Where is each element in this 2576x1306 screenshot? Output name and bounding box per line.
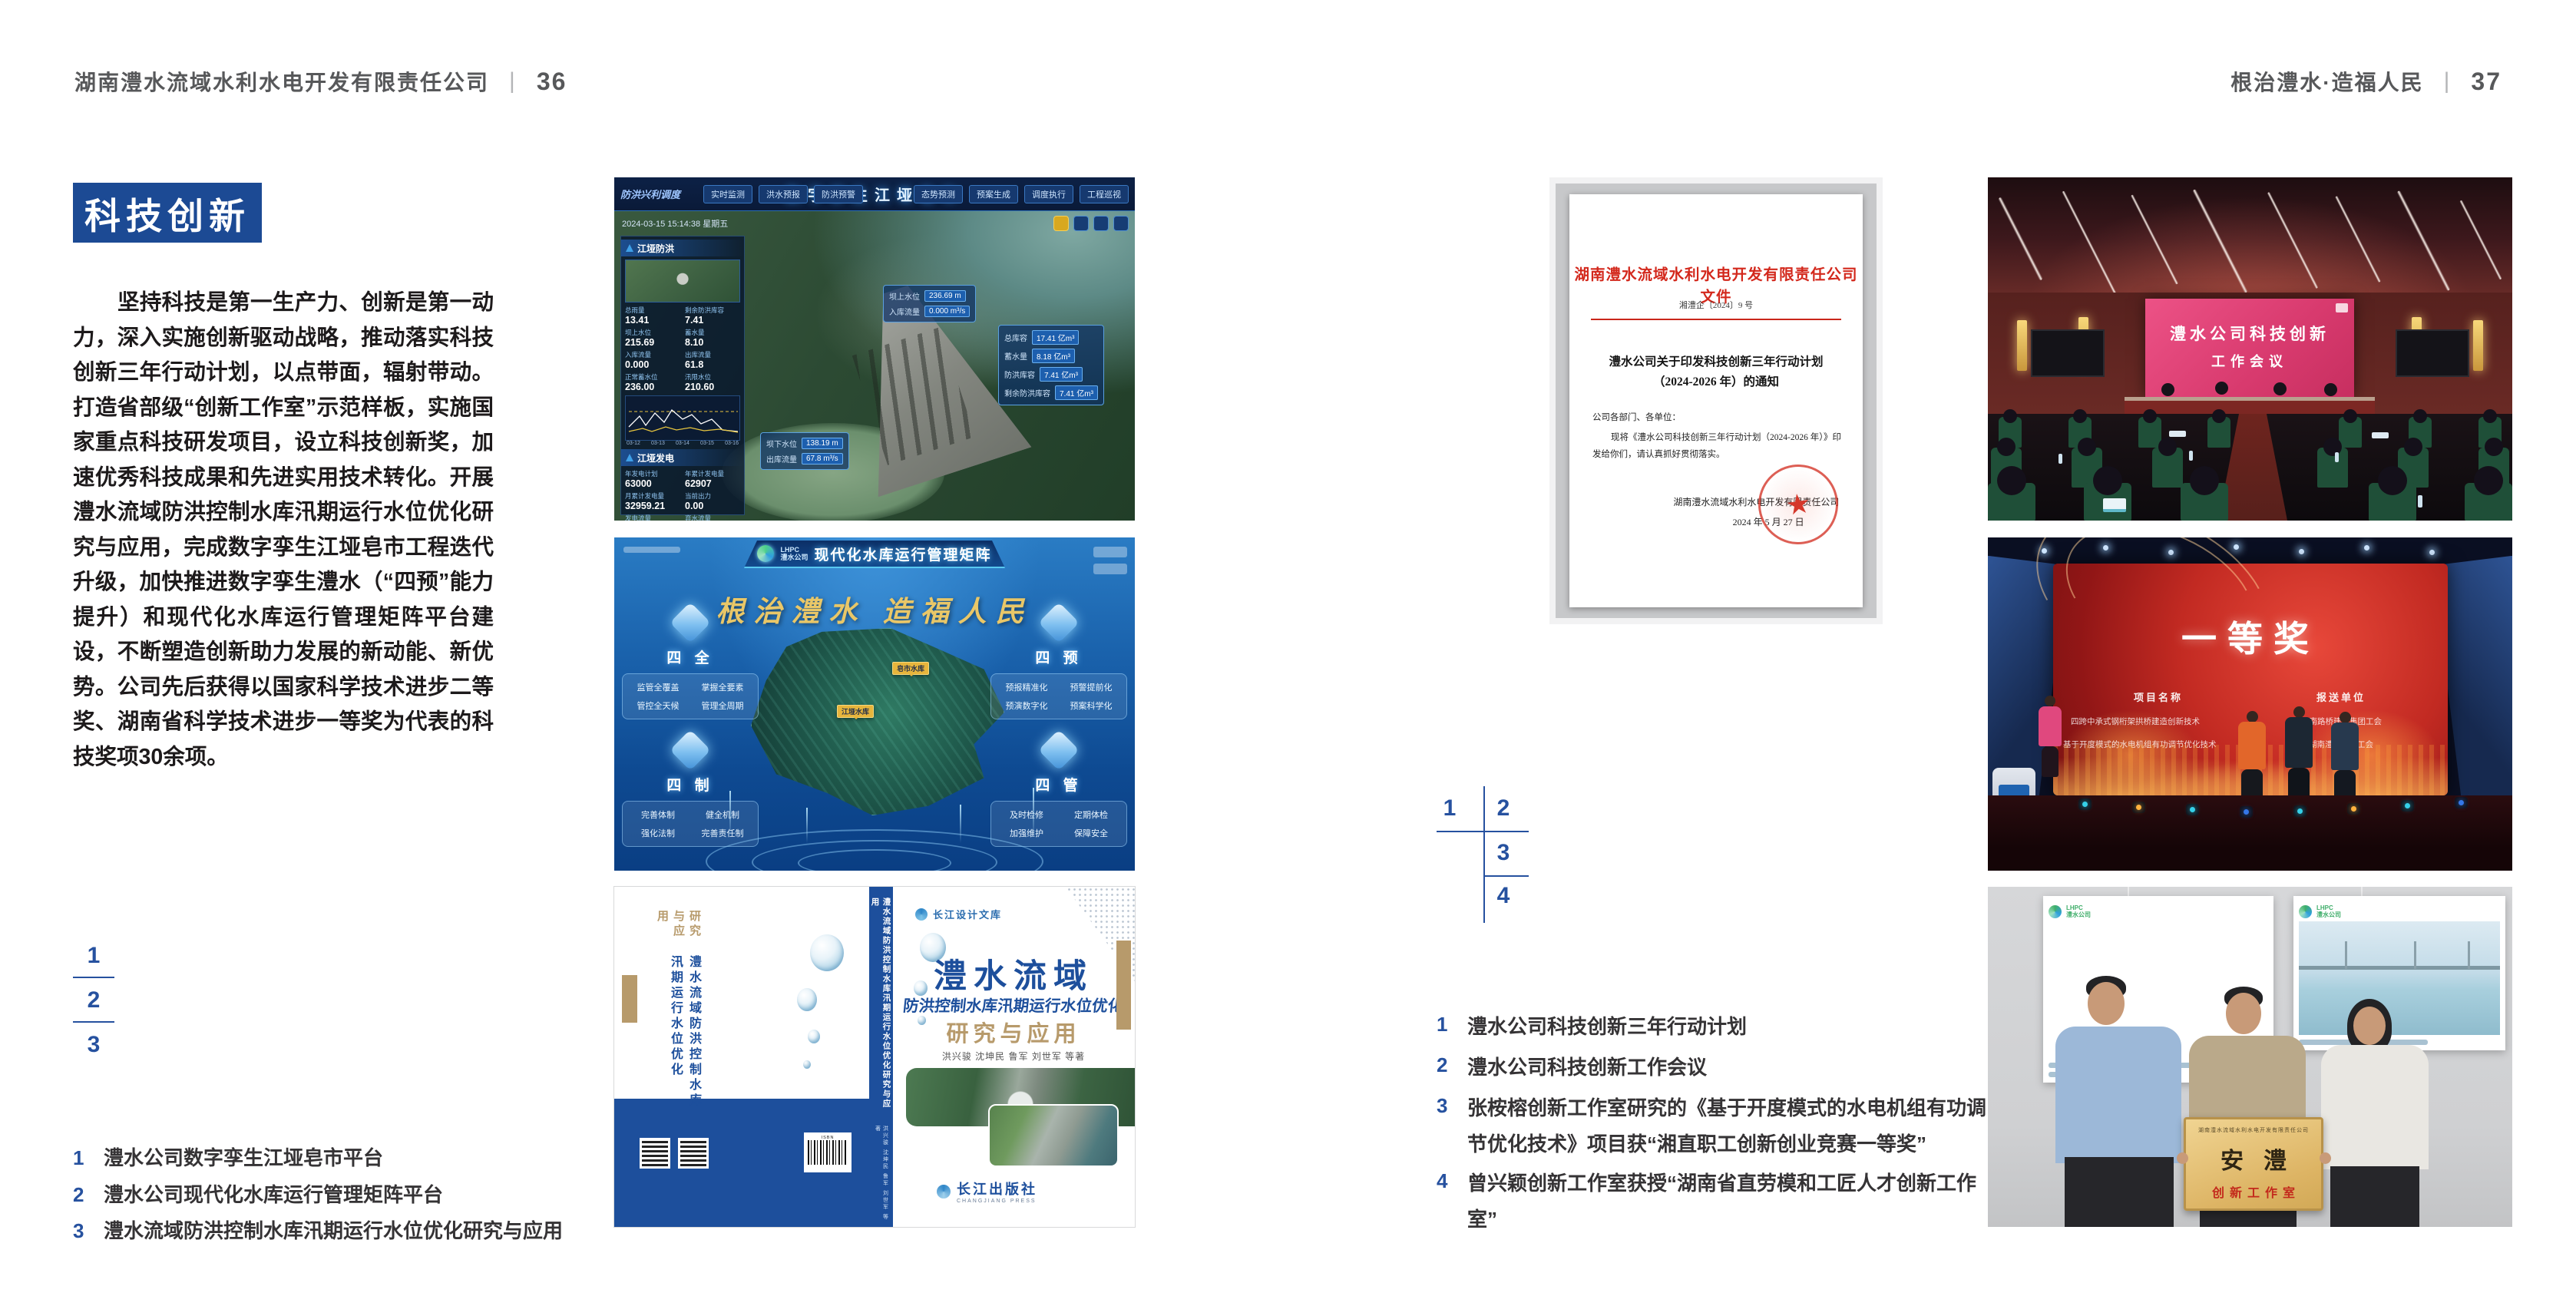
stat-cell: 正常蓄水位236.00 <box>625 372 680 392</box>
tab: 调度执行 <box>1024 185 1073 203</box>
spotlight <box>2364 545 2369 551</box>
stage-light-fixture <box>2401 800 2414 812</box>
meeting-screen: 澧水公司科技创新 工作会议 <box>2145 299 2354 397</box>
holding-hand <box>2177 1152 2188 1164</box>
layers-icon <box>1073 216 1089 231</box>
lhpc-logo-icon <box>2299 905 2312 918</box>
tab: 洪水预报 <box>759 185 808 203</box>
document-page: 湖南澧水流域水利水电开发有限责任公司文件 湘澧企〔2024〕9 号 澧水公司关于… <box>1569 194 1863 607</box>
caption-number: 4 <box>1437 1165 1455 1196</box>
sail-icon <box>626 244 633 252</box>
stat-cell: 年发电计划63000 <box>625 469 680 489</box>
papers <box>2372 432 2389 438</box>
module-title: 四 预 <box>990 646 1127 667</box>
side-display <box>2396 329 2469 377</box>
figure-book-cover: 研究与应用 澧水流域防洪控制水库汛期运行水位优化 澧水流域防洪控制水库汛期运行水… <box>614 887 1135 1227</box>
module-items: 完善体制健全机制 强化法制完善责任制 <box>622 801 759 847</box>
official-seal: ★ <box>1753 459 1843 549</box>
module-items: 及时检修定期体检 加强维护保障安全 <box>990 801 1127 847</box>
poster-logo-row: LHPC澧水公司 <box>2049 901 2268 921</box>
panel-title: 江垭防洪 <box>637 242 674 255</box>
document-body-line2: 发给你们，请认真抓好贯彻落实。 <box>1592 448 1841 460</box>
panelist-head <box>2215 382 2228 395</box>
module-items: 预报精准化预警提前化 预演数字化预案科学化 <box>990 673 1127 719</box>
series-badge: 长江设计文库 <box>915 907 1002 921</box>
platform-title: 现代化水库运行管理矩阵 <box>815 544 992 564</box>
dashboard-timestamp: 2024-03-15 15:14:38 星期五 <box>622 217 728 230</box>
chair <box>1988 483 2035 521</box>
panel-title: 江垭发电 <box>637 451 674 465</box>
person-pants <box>2330 1166 2419 1227</box>
caption-row: 4 曾兴颖创新工作室获授“湖南省直劳模和工匠人才创新工作室” <box>1437 1165 2005 1238</box>
header-divider: | <box>2444 68 2452 94</box>
caption-number: 2 <box>73 1179 91 1210</box>
page-header-left: 湖南澧水流域水利水电开发有限责任公司 | 36 <box>74 66 567 97</box>
poster-caption-bars <box>2299 1040 2500 1045</box>
sail-icon <box>626 454 633 461</box>
caption-number: 1 <box>73 1142 91 1173</box>
figure-index-2: 2 <box>1488 795 1519 822</box>
spine-authors: 洪兴骏 沈坤民 鲁军 刘世军 等著 <box>874 1126 889 1227</box>
spotlight <box>2299 549 2304 554</box>
figure-index-1: 1 <box>73 943 114 969</box>
tab: 防洪预警 <box>814 185 863 203</box>
dashboard-tabs-right: 态势预测 预案生成 调度执行 工程巡视 <box>914 185 1129 203</box>
person-pants <box>2065 1157 2174 1227</box>
figure-award-ceremony: 一等奖 项目名称 报送单位 四跨中承式钢桁架拱桥建造创新技术 基于开度模式的水电… <box>1988 537 2512 871</box>
lhpc-logo-icon <box>757 545 774 562</box>
tissue-box <box>2103 498 2126 512</box>
stage-light-fixture <box>2455 797 2468 808</box>
book-title: 澧水流域 <box>902 950 1125 997</box>
publisher-logo-icon <box>937 1185 951 1199</box>
document-salutation: 公司各部门、各单位： <box>1592 411 1681 423</box>
publisher-name: 长江出版社 <box>957 1179 1037 1199</box>
panelist-head <box>2273 382 2287 395</box>
stage-light-fixture <box>2240 806 2253 818</box>
changjiang-logo-icon <box>915 908 928 921</box>
wall-lamp <box>2473 320 2483 371</box>
host-skirt <box>2042 746 2058 777</box>
stage-light-fixture <box>2132 802 2145 813</box>
book-subtitle: 防洪控制水库汛期运行水位优化 <box>894 993 1132 1016</box>
light-pillar <box>806 808 808 843</box>
panelist-head <box>2324 383 2337 396</box>
document-number: 湘澧企〔2024〕9 号 <box>1569 299 1863 311</box>
caption-number: 3 <box>73 1215 91 1246</box>
mini-chart <box>625 395 740 441</box>
qr-code <box>642 1140 668 1166</box>
document-red-rule <box>1591 319 1841 320</box>
dashboard-corner-label: 防洪兴利调度 <box>620 187 680 201</box>
figure-studio-group-photo: LHPC澧水公司 LHPC澧水公司 <box>1988 887 2512 1227</box>
book-spine: 澧水流域防洪控制水库汛期运行水位优化研究与应用 洪兴骏 沈坤民 鲁军 刘世军 等… <box>869 887 893 1227</box>
wall-poster-right: LHPC澧水公司 <box>2293 896 2505 1050</box>
module-icon <box>670 729 711 771</box>
stat-cell: 弃水流量0.00 <box>685 514 740 521</box>
column-header-project: 项目名称 <box>2134 689 2183 704</box>
qr-code <box>680 1140 706 1166</box>
caption-number: 3 <box>1437 1090 1455 1121</box>
module-sizhi: 四 制 完善体制健全机制 强化法制完善责任制 <box>622 736 759 847</box>
module-siquan: 四 全 监管全覆盖掌握全要素 管控全天候管理全周期 <box>622 608 759 719</box>
chair <box>2138 417 2161 448</box>
figure-index-3: 3 <box>1488 840 1519 866</box>
figure-index-2: 2 <box>73 987 114 1013</box>
stage-light-fixture <box>2293 805 2306 817</box>
series-badge-text: 长江设计文库 <box>933 907 1002 921</box>
presenter-suit <box>2285 717 2313 768</box>
book-series-line: 研究与应用 <box>902 1016 1125 1048</box>
bridge-pylon <box>2345 941 2347 969</box>
module-icon <box>670 602 711 643</box>
barcode: ISBN <box>804 1132 852 1172</box>
caption-text: 澧水流域防洪控制水库汛期运行水位优化研究与应用 <box>104 1215 563 1246</box>
figure-matrix-platform: LHPC澧水公司 现代化水库运行管理矩阵 根治澧水 造福人民 江垭水库 皂市水库… <box>614 537 1135 871</box>
figure-index-1: 1 <box>1434 795 1465 822</box>
column-header-unit: 报送单位 <box>2316 689 2366 704</box>
audience-row <box>1999 417 2502 448</box>
person-head <box>2088 982 2125 1025</box>
module-icon <box>1038 729 1080 771</box>
locate-icon <box>1093 216 1109 231</box>
chair <box>2465 483 2512 521</box>
caption-number: 2 <box>1437 1050 1455 1080</box>
awardee-head <box>2340 712 2351 723</box>
chair <box>2369 483 2416 521</box>
caption-text: 澧水公司现代化水库运行管理矩阵平台 <box>104 1179 443 1210</box>
stat-cell: 当前出力0.00 <box>685 491 740 511</box>
module-siguan: 四 管 及时检修定期体检 加强维护保障安全 <box>990 736 1127 847</box>
document-title-line2: （2024-2026 年）的通知 <box>1569 372 1863 389</box>
water-droplet <box>810 934 844 971</box>
caption-text: 澧水公司数字孪生江垭皂市平台 <box>104 1142 383 1173</box>
chair <box>2339 417 2362 448</box>
power-stats-grid: 年发电计划63000 年累计发电量62907 月累计发电量32959.21 当前… <box>625 469 740 521</box>
stat-cell: 发电流量0.00 <box>625 514 680 521</box>
person-polo-shirt <box>2055 1027 2181 1163</box>
water-droplet <box>797 988 817 1011</box>
caption-text: 曾兴颖创新工作室获授“湖南省直劳模和工匠人才创新工作室” <box>1467 1165 2005 1238</box>
screen-title-line1: 澧水公司科技创新 <box>2145 322 2354 345</box>
stat-cell: 年累计发电量62907 <box>685 469 740 489</box>
stat-cell: 入库流量0.000 <box>625 350 680 370</box>
module-icon <box>1038 602 1080 643</box>
company-name: 湖南澧水流域水利水电开发有限责任公司 <box>74 66 489 97</box>
index-rule <box>73 977 114 978</box>
bridge-pylon <box>2468 941 2470 969</box>
stat-cell: 坝上水位215.69 <box>625 328 680 348</box>
module-title: 四 制 <box>622 774 759 795</box>
wall-lamp <box>2017 320 2027 371</box>
lhpc-logo-icon <box>2049 905 2062 918</box>
water-droplet <box>808 1030 820 1043</box>
screen-logo-icon <box>2336 303 2348 312</box>
basin-map-texture <box>751 628 1004 815</box>
light-pillar <box>729 791 731 837</box>
stat-cell: 剩余防洪库容7.41 <box>685 306 740 326</box>
poster-logo-row: LHPC澧水公司 <box>2299 901 2500 921</box>
book-authors: 洪兴骏 沈坤民 鲁军 刘世军 等著 <box>902 1050 1125 1063</box>
caption-text: 澧水公司科技创新工作会议 <box>1467 1050 2005 1086</box>
callout-downstream: 坝下水位138.19 m 出库流量67.8 m³/s <box>760 432 849 470</box>
caption-row: 1 澧水公司科技创新三年行动计划 <box>1437 1009 2005 1045</box>
page-number-36: 36 <box>537 68 567 96</box>
module-title: 四 全 <box>622 646 759 667</box>
module-title: 四 管 <box>990 774 1127 795</box>
stat-cell: 总雨量13.41 <box>625 306 680 326</box>
module-items: 监管全覆盖掌握全要素 管控全天候管理全周期 <box>622 673 759 719</box>
awardee-orange <box>2238 722 2266 769</box>
document-title-line1: 澧水公司关于印发科技创新三年行动计划 <box>1569 352 1863 369</box>
hologram-ring <box>798 849 951 871</box>
back-title-gold: 研究与应用 <box>654 910 703 951</box>
map-label-jiangya: 江垭水库 <box>837 705 874 718</box>
stage-light-fixture <box>2186 804 2199 815</box>
barcode-bars <box>808 1140 848 1165</box>
panelist-head <box>2161 383 2174 396</box>
stat-cell: 蓄水量8.10 <box>685 328 740 348</box>
front-accent-bar <box>1116 941 1131 1030</box>
person-head <box>2353 1007 2386 1045</box>
figure-index-4: 4 <box>1488 883 1519 909</box>
settings-icon <box>1113 216 1129 231</box>
caption-row: 1 澧水公司数字孪生江垭皂市平台 <box>73 1142 383 1173</box>
toolbar-chip <box>1093 564 1127 574</box>
panel-header-flood: 江垭防洪 <box>621 240 744 256</box>
person-white-tee <box>2321 1045 2429 1169</box>
water-bottle <box>2189 451 2193 461</box>
poster-logo-text: LHPC澧水公司 <box>2316 904 2341 918</box>
figure-innovation-meeting: 澧水公司科技创新 工作会议 <box>1988 177 2512 521</box>
papers <box>2169 431 2186 437</box>
figure-official-document: 湖南澧水流域水利水电开发有限责任公司文件 湘澧企〔2024〕9 号 澧水公司关于… <box>1549 177 1883 624</box>
page-header-right: 根治澧水·造福人民 | 37 <box>2230 66 2502 97</box>
module-siyu: 四 预 预报精准化预警提前化 预演数字化预案科学化 <box>990 608 1127 719</box>
holding-hand <box>2320 1152 2331 1164</box>
person-head <box>2226 993 2261 1034</box>
host-head <box>2045 696 2055 706</box>
tab: 工程巡视 <box>1080 185 1129 203</box>
seal-star-icon: ★ <box>1784 487 1813 522</box>
caption-text: 张桉榕创新工作室研究的《基于开度模式的水电机组有功调节优化技术》项目获“湘直职工… <box>1467 1090 2005 1162</box>
flood-stats-grid: 总雨量13.41 剩余防洪库容7.41 坝上水位215.69 蓄水量8.10 入… <box>625 306 740 392</box>
section-title: 科技创新 <box>73 183 262 243</box>
document-body-line1: 现将《澧水公司科技创新三年行动计划（2024-2026 年）》印 <box>1592 431 1841 443</box>
caption-row: 3 澧水流域防洪控制水库汛期运行水位优化研究与应用 <box>73 1215 563 1246</box>
spine-title: 澧水流域防洪控制水库汛期运行水位优化研究与应用 <box>870 898 893 1118</box>
spotlight <box>2429 550 2435 555</box>
company-motto: 根治澧水·造福人民 <box>2230 66 2423 97</box>
dam-photo-2 <box>988 1104 1119 1167</box>
award-title: 一等奖 <box>2053 611 2448 662</box>
light-pillar <box>1033 788 1034 837</box>
light-pillar <box>960 805 961 843</box>
stage-light-fixture <box>2078 798 2092 810</box>
platform-header: LHPC澧水公司 现代化水库运行管理矩阵 <box>744 541 1005 568</box>
awardee-head <box>2247 711 2258 722</box>
side-display <box>2031 329 2105 377</box>
stat-cell: 出库流量61.8 <box>685 350 740 370</box>
timestamp-placeholder <box>623 547 680 553</box>
map-label-zaoshi: 皂市水库 <box>892 662 929 675</box>
publisher-block: 长江出版社 CHANGJIANG PRESS <box>937 1179 1037 1204</box>
callout-upstream: 坝上水位236.69 m 入库流量0.000 m³/s <box>883 285 976 322</box>
dam-photo-thumbnail <box>625 260 740 303</box>
studio-plaque: 湖南澧水流域水利水电开发有限责任公司 安澧 创新工作室 <box>2184 1117 2323 1211</box>
chair <box>2152 448 2183 488</box>
spotlight <box>2234 544 2239 550</box>
back-accent-bar <box>622 975 637 1023</box>
tab: 态势预测 <box>914 185 963 203</box>
caption-row: 2 澧水公司科技创新工作会议 <box>1437 1050 2005 1086</box>
stat-cell: 月累计发电量32959.21 <box>625 491 680 511</box>
caption-row: 3 张桉榕创新工作室研究的《基于开度模式的水电机组有功调节优化技术》项目获“湘直… <box>1437 1090 2005 1162</box>
screen-title-line2: 工作会议 <box>2145 351 2354 371</box>
index-rule <box>1437 831 1529 832</box>
header-divider: | <box>509 68 517 94</box>
plaque-main-title: 安澧 <box>2186 1142 2321 1175</box>
dashboard-icon-cluster <box>1053 216 1129 231</box>
figure-digital-twin-platform: 数字孪生江垭皂市 防洪兴利调度 实时监测 洪水预报 防洪预警 态势预测 预案生成… <box>614 177 1135 521</box>
project-row: 四跨中承式钢桁架拱桥建造创新技术 <box>2071 716 2200 727</box>
back-title-blue: 澧水流域防洪控制水库汛期运行水位优化 <box>654 955 703 1109</box>
poster-bridge-photo <box>2299 921 2500 1035</box>
callout-capacity: 总库容17.41 亿m³ 蓄水量8.18 亿m³ 防洪库容7.41 亿m³ 剩余… <box>998 325 1104 405</box>
chart-x-axis: 03-1203-1303-1403-1503-16 <box>625 441 740 446</box>
caption-row: 2 澧水公司现代化水库运行管理矩阵平台 <box>73 1179 443 1210</box>
audience-row <box>1991 448 2509 488</box>
water-bottle <box>2418 495 2422 508</box>
water-bottle <box>2335 452 2339 462</box>
host-figure <box>2039 706 2062 746</box>
back-cover-vertical-title: 研究与应用 澧水流域防洪控制水库汛期运行水位优化 <box>654 910 703 1109</box>
index-rule-vertical <box>1483 786 1485 923</box>
water-bottle <box>2058 454 2062 464</box>
index-rule <box>73 1021 114 1023</box>
water-droplet <box>803 1060 811 1069</box>
page-number-37: 37 <box>2471 68 2502 96</box>
publisher-name-en: CHANGJIANG PRESS <box>957 1199 1037 1204</box>
dashboard-tabs-left: 实时监测 洪水预报 防洪预警 <box>703 185 863 203</box>
awardee-navy <box>2331 722 2359 770</box>
tab: 预案生成 <box>969 185 1018 203</box>
chair <box>2207 417 2230 448</box>
stage-light-fixture <box>2347 803 2360 815</box>
plaque-org-line: 湖南澧水流域水利水电开发有限责任公司 <box>2186 1126 2321 1134</box>
figure-index-3: 3 <box>73 1032 114 1058</box>
body-paragraph: 坚持科技是第一生产力、创新是第一动力，深入实施创新驱动战略，推动落实科技创新三年… <box>73 286 494 775</box>
alert-icon <box>1053 216 1069 231</box>
index-rule <box>1483 875 1529 877</box>
chair <box>2317 448 2348 488</box>
stat-cell: 汛限水位210.60 <box>685 372 740 392</box>
bridge-pylon <box>2414 941 2416 969</box>
dashboard-sidebar: 江垭防洪 总雨量13.41 剩余防洪库容7.41 坝上水位215.69 蓄水量8… <box>620 236 745 515</box>
poster-logo-text: LHPC澧水公司 <box>2066 904 2091 918</box>
toolbar-chip <box>1093 547 1127 557</box>
logo-text: LHPC澧水公司 <box>780 546 808 561</box>
plaque-subtitle: 创新工作室 <box>2186 1182 2321 1201</box>
chair <box>2181 483 2228 521</box>
caption-text: 澧水公司科技创新三年行动计划 <box>1467 1009 2005 1045</box>
tab: 实时监测 <box>703 185 752 203</box>
caption-number: 1 <box>1437 1009 1455 1040</box>
panel-header-power: 江垭发电 <box>621 449 744 466</box>
presenter-head <box>2293 706 2305 718</box>
audience-row <box>1988 483 2512 521</box>
